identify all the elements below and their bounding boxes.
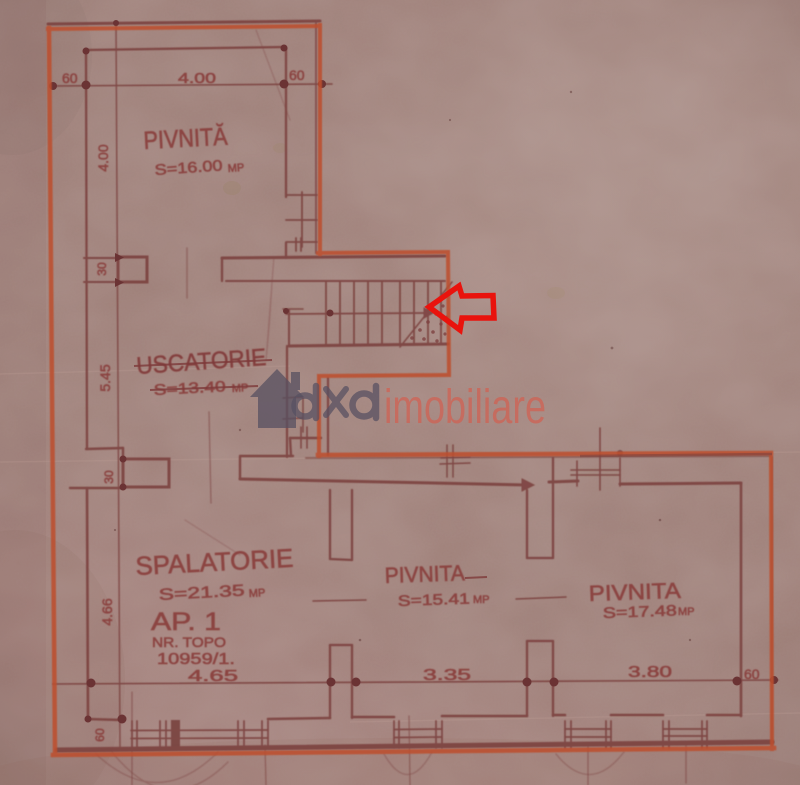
svg-text:PIVNITĂ: PIVNITĂ [143,122,229,155]
svg-text:30: 30 [95,262,109,276]
svg-text:3.35: 3.35 [423,667,471,684]
svg-text:MP: MP [249,587,266,600]
svg-text:30: 30 [102,470,116,484]
svg-text:S=17.48: S=17.48 [603,602,678,622]
svg-text:3.80: 3.80 [628,664,672,681]
svg-text:PIVNITA: PIVNITA [384,560,465,588]
svg-text:4.66: 4.66 [99,598,115,625]
svg-text:MP: MP [227,162,244,175]
svg-text:4.00: 4.00 [95,144,111,171]
svg-text:10959/1.: 10959/1. [157,651,235,668]
svg-text:60: 60 [744,666,760,682]
svg-text:60: 60 [93,728,107,742]
svg-text:NR. TOPO: NR. TOPO [152,634,226,650]
svg-text:4.65: 4.65 [188,668,238,685]
svg-text:S=15.41: S=15.41 [398,590,471,610]
svg-text:imobiliare: imobiliare [384,381,546,434]
svg-text:60: 60 [289,67,305,83]
svg-text:60: 60 [62,70,78,86]
svg-text:4.00: 4.00 [178,70,216,87]
svg-text:MP: MP [473,594,490,606]
svg-text:AP. 1: AP. 1 [151,608,221,636]
svg-text:MP: MP [232,382,249,395]
svg-text:MP: MP [678,606,695,618]
svg-text:5.45: 5.45 [97,364,113,391]
